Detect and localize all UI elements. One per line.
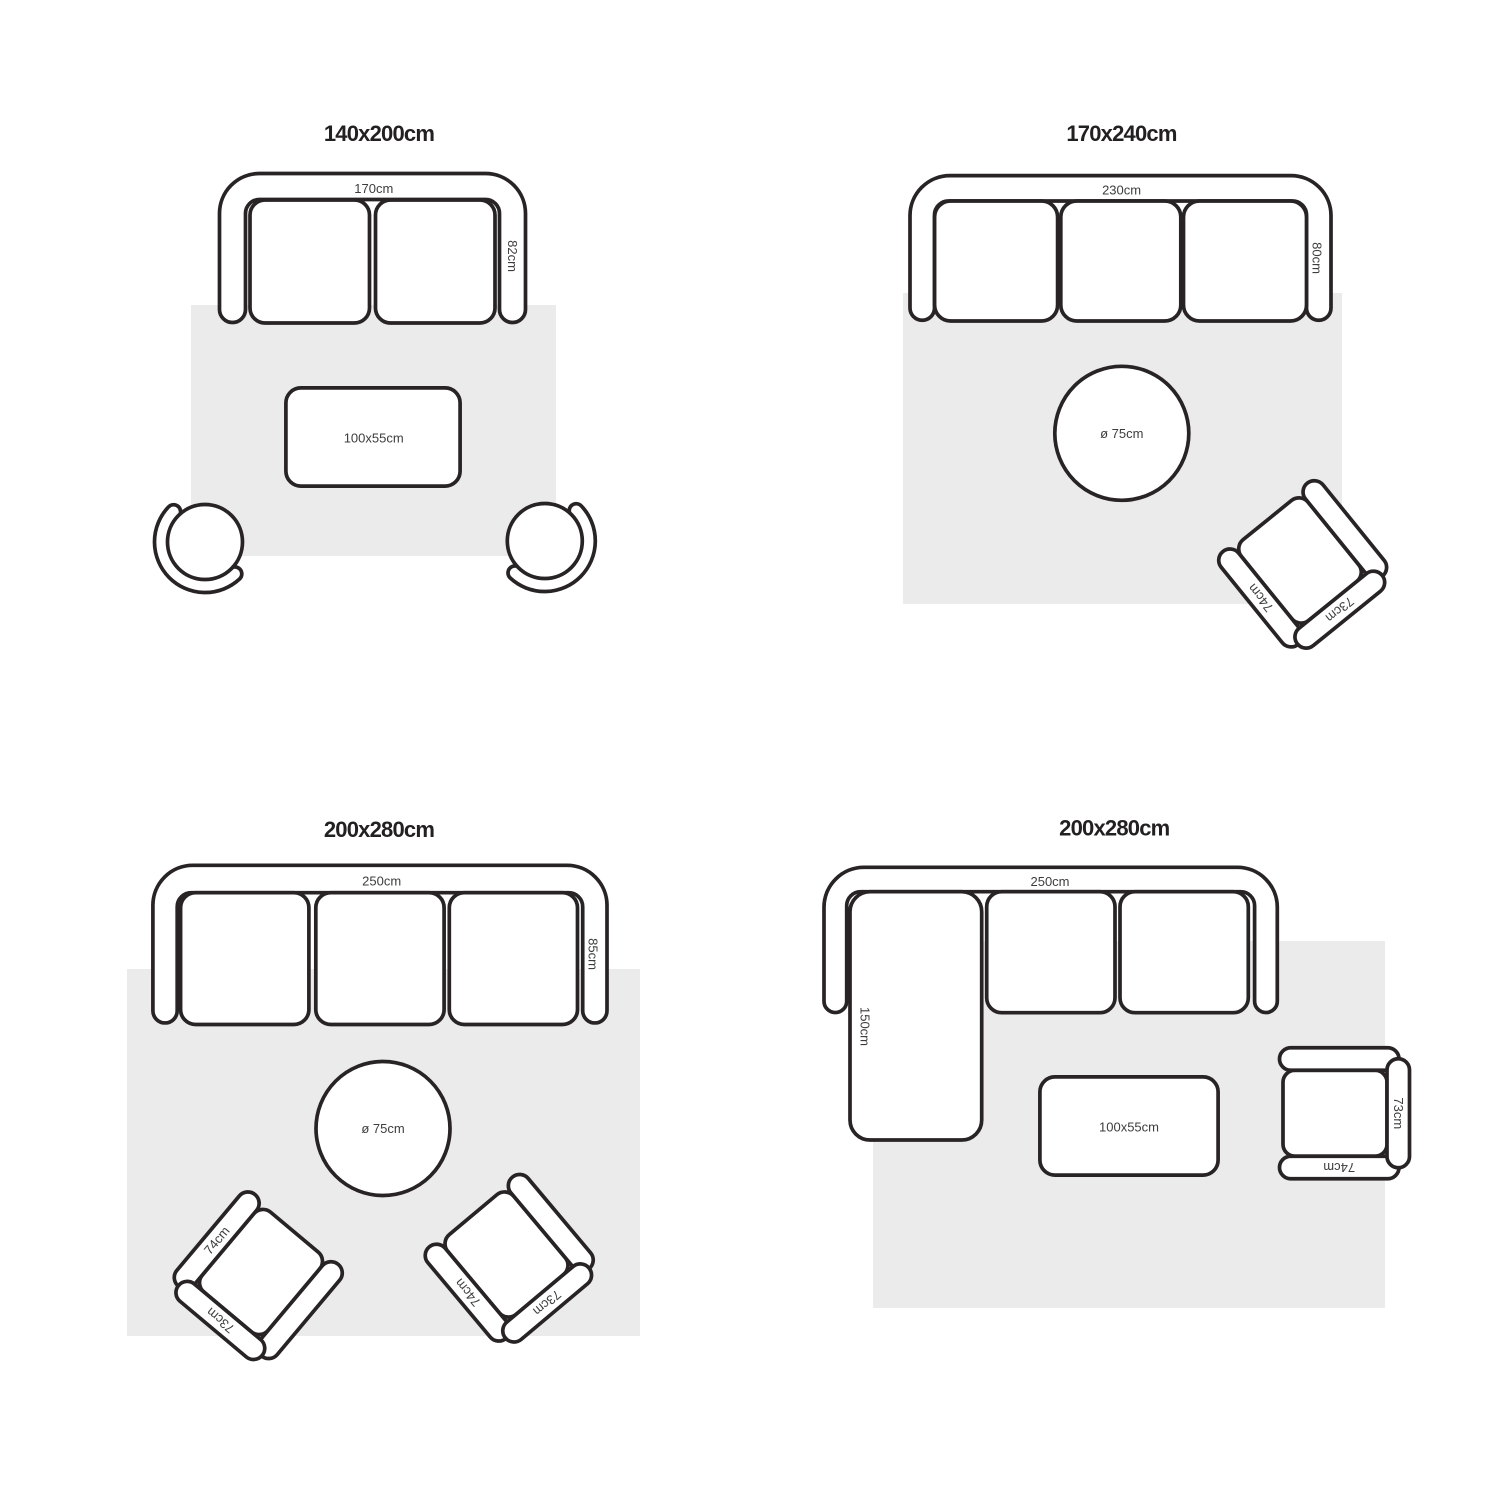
svg-text:200x280cm: 200x280cm (324, 817, 434, 842)
svg-text:250cm: 250cm (362, 873, 401, 888)
svg-text:170x240cm: 170x240cm (1066, 121, 1176, 146)
svg-text:82cm: 82cm (505, 240, 520, 272)
svg-text:150cm: 150cm (858, 1007, 873, 1046)
svg-text:ø 75cm: ø 75cm (361, 1121, 404, 1136)
svg-text:80cm: 80cm (1310, 242, 1325, 274)
svg-text:85cm: 85cm (586, 938, 601, 970)
svg-text:200x280cm: 200x280cm (1059, 816, 1169, 841)
svg-text:170cm: 170cm (354, 181, 393, 196)
svg-text:140x200cm: 140x200cm (324, 121, 434, 146)
svg-text:100x55cm: 100x55cm (1099, 1120, 1159, 1135)
svg-text:100x55cm: 100x55cm (344, 431, 404, 446)
svg-text:250cm: 250cm (1030, 874, 1069, 889)
svg-text:230cm: 230cm (1102, 183, 1141, 198)
svg-text:ø 75cm: ø 75cm (1100, 426, 1143, 441)
